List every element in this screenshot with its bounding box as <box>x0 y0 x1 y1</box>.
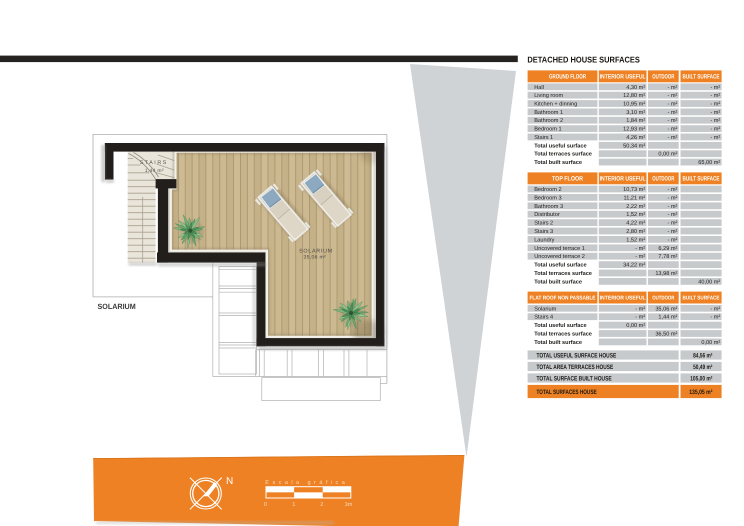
svg-text:2,22 m²: 2,22 m² <box>626 204 645 210</box>
svg-text:4,30 m²: 4,30 m² <box>626 85 645 91</box>
svg-text:2,80 m²: 2,80 m² <box>626 229 645 235</box>
svg-text:12,93 m²: 12,93 m² <box>623 127 645 133</box>
svg-text:3,10 m²: 3,10 m² <box>626 110 645 116</box>
svg-text:Hall: Hall <box>534 84 544 91</box>
svg-text:34,22 m²: 34,22 m² <box>623 263 645 269</box>
svg-text:- m²: - m² <box>635 306 645 312</box>
svg-text:Bedroom 2: Bedroom 2 <box>534 186 561 193</box>
svg-text:Total terraces surface: Total terraces surface <box>534 330 592 337</box>
svg-text:TOTAL USEFUL SURFACE HOUSE: TOTAL USEFUL SURFACE HOUSE <box>537 352 617 359</box>
svg-text:4,26 m²: 4,26 m² <box>626 135 645 141</box>
svg-text:36,50 m²: 36,50 m² <box>655 331 677 337</box>
svg-text:DETACHED HOUSE SURFACES: DETACHED HOUSE SURFACES <box>527 55 640 65</box>
svg-text:TOTAL AREA TERRACES HOUSE: TOTAL AREA TERRACES HOUSE <box>537 364 614 371</box>
svg-text:11,21 m²: 11,21 m² <box>624 195 646 201</box>
svg-text:- m²: - m² <box>667 237 677 243</box>
svg-text:1,44 m²: 1,44 m² <box>145 168 164 174</box>
svg-text:SOLARIUM: SOLARIUM <box>299 248 333 254</box>
svg-text:10,95 m²: 10,95 m² <box>623 101 645 107</box>
svg-text:- m²: - m² <box>667 229 677 235</box>
svg-text:INTERIOR USEFUL: INTERIOR USEFUL <box>600 74 646 81</box>
svg-text:- m²: - m² <box>710 127 720 133</box>
svg-text:Total useful surface: Total useful surface <box>534 142 586 149</box>
svg-text:Stairs 2: Stairs 2 <box>534 220 553 227</box>
svg-text:Living room: Living room <box>534 92 563 99</box>
svg-text:- m²: - m² <box>667 195 677 201</box>
svg-text:Total useful surface: Total useful surface <box>534 322 586 329</box>
svg-text:Laundry: Laundry <box>534 236 554 243</box>
svg-text:6,29 m²: 6,29 m² <box>658 246 677 252</box>
svg-text:Solarium: Solarium <box>534 305 556 312</box>
svg-text:1,44 m²: 1,44 m² <box>658 315 677 321</box>
svg-text:- m²: - m² <box>710 85 720 91</box>
svg-text:OUTDOOR: OUTDOOR <box>652 296 674 302</box>
svg-text:- m²: - m² <box>710 110 720 116</box>
svg-text:N: N <box>226 476 233 487</box>
svg-text:- m²: - m² <box>710 101 720 107</box>
svg-text:Bathroom 1: Bathroom 1 <box>534 109 563 116</box>
svg-text:84,56 m²: 84,56 m² <box>693 352 712 359</box>
svg-text:12,80 m²: 12,80 m² <box>623 93 645 99</box>
svg-text:7,78 m²: 7,78 m² <box>658 254 677 260</box>
svg-text:Uncovered terrace 1: Uncovered terrace 1 <box>534 245 585 252</box>
svg-text:2: 2 <box>320 502 323 508</box>
svg-text:40,00 m²: 40,00 m² <box>698 279 720 285</box>
svg-text:TOP FLOOR: TOP FLOOR <box>552 176 583 183</box>
svg-text:Total built surface: Total built surface <box>534 278 582 285</box>
svg-text:- m²: - m² <box>667 93 677 99</box>
svg-text:1: 1 <box>292 502 295 508</box>
svg-text:- m²: - m² <box>635 254 645 260</box>
svg-text:SOLARIUM: SOLARIUM <box>98 302 136 311</box>
svg-text:Uncovered terrace 2: Uncovered terrace 2 <box>534 253 585 260</box>
svg-text:10,73 m²: 10,73 m² <box>623 187 645 193</box>
svg-text:- m²: - m² <box>710 315 720 321</box>
svg-text:OUTDOOR: OUTDOOR <box>652 74 675 81</box>
svg-text:4,22 m²: 4,22 m² <box>626 221 645 227</box>
svg-text:Bathroom 3: Bathroom 3 <box>534 203 563 210</box>
svg-text:Total built surface: Total built surface <box>534 339 582 346</box>
svg-text:Total terraces surface: Total terraces surface <box>534 151 592 158</box>
svg-text:0,00 m²: 0,00 m² <box>658 152 677 158</box>
svg-text:Bathroom 2: Bathroom 2 <box>534 117 563 124</box>
svg-text:BUILT SURFACE: BUILT SURFACE <box>683 176 720 183</box>
svg-text:Stairs 1: Stairs 1 <box>534 134 553 141</box>
svg-text:- m²: - m² <box>635 246 645 252</box>
svg-text:Total built surface: Total built surface <box>534 159 582 166</box>
svg-text:Bedroom 3: Bedroom 3 <box>534 194 561 201</box>
svg-text:TOTAL SURFACE BUILT HOUSE: TOTAL SURFACE BUILT HOUSE <box>537 375 613 382</box>
svg-text:Total terraces surface: Total terraces surface <box>534 270 592 277</box>
svg-text:0,00 m²: 0,00 m² <box>626 323 645 329</box>
svg-text:1,84 m²: 1,84 m² <box>626 118 645 124</box>
svg-text:50,34 m²: 50,34 m² <box>623 143 645 149</box>
svg-text:- m²: - m² <box>710 306 720 312</box>
svg-text:35,06 m²: 35,06 m² <box>304 255 327 261</box>
svg-text:BUILT SURFACE: BUILT SURFACE <box>683 296 720 302</box>
svg-text:0,00 m²: 0,00 m² <box>701 340 720 346</box>
svg-text:- m²: - m² <box>667 204 677 210</box>
svg-text:Distributor: Distributor <box>534 211 560 218</box>
svg-text:- m²: - m² <box>710 118 720 124</box>
svg-text:INTERIOR USEFUL: INTERIOR USEFUL <box>600 296 647 302</box>
svg-text:BUILT SURFACE: BUILT SURFACE <box>683 74 720 81</box>
svg-text:Total useful surface: Total useful surface <box>534 262 586 269</box>
svg-text:- m²: - m² <box>635 315 645 321</box>
svg-text:- m²: - m² <box>667 212 677 218</box>
svg-text:TOTAL SURFACES HOUSE: TOTAL SURFACES HOUSE <box>537 389 598 396</box>
svg-text:1,52 m²: 1,52 m² <box>626 212 645 218</box>
svg-text:- m²: - m² <box>667 85 677 91</box>
svg-text:- m²: - m² <box>667 118 677 124</box>
svg-text:65,00 m²: 65,00 m² <box>698 160 720 166</box>
svg-text:- m²: - m² <box>667 101 677 107</box>
svg-text:GROUND FLOOR: GROUND FLOOR <box>549 74 586 81</box>
svg-text:Stairs 4: Stairs 4 <box>534 314 553 321</box>
svg-text:105,00 m²: 105,00 m² <box>690 375 712 382</box>
svg-text:- m²: - m² <box>667 110 677 116</box>
svg-text:3m: 3m <box>345 502 353 508</box>
svg-text:Bedroom 1: Bedroom 1 <box>534 126 561 133</box>
svg-text:Kitchen + dinning: Kitchen + dinning <box>534 100 577 107</box>
svg-text:135,05 m²: 135,05 m² <box>689 389 712 396</box>
svg-text:35,06 m²: 35,06 m² <box>655 306 677 312</box>
svg-text:- m²: - m² <box>667 135 677 141</box>
svg-text:- m²: - m² <box>667 187 677 193</box>
svg-text:1,52 m²: 1,52 m² <box>626 237 645 243</box>
svg-text:OUTDOOR: OUTDOOR <box>652 176 675 183</box>
svg-text:- m²: - m² <box>667 221 677 227</box>
svg-text:- m²: - m² <box>710 93 720 99</box>
svg-text:Stairs 3: Stairs 3 <box>534 228 553 235</box>
svg-text:50,49 m²: 50,49 m² <box>693 364 712 371</box>
svg-text:13,98 m²: 13,98 m² <box>655 271 677 277</box>
svg-text:- m²: - m² <box>667 127 677 133</box>
svg-text:- m²: - m² <box>710 135 720 141</box>
svg-text:FLAT ROOF NON PASSABLE: FLAT ROOF NON PASSABLE <box>530 296 596 302</box>
svg-text:INTERIOR USEFUL: INTERIOR USEFUL <box>600 176 646 183</box>
svg-text:0: 0 <box>264 502 267 508</box>
